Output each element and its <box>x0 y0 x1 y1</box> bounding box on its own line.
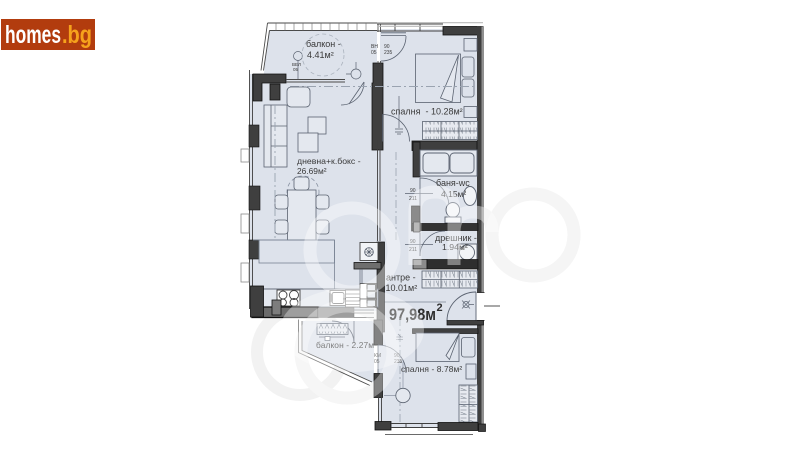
svg-text:спалня - 8.78м²: спалня - 8.78м² <box>401 364 462 374</box>
svg-text:балкон -: балкон - <box>306 39 341 49</box>
svg-text:homes: homes <box>5 21 61 49</box>
svg-text:235: 235 <box>384 50 393 56</box>
svg-text:.bg: .bg <box>62 21 92 49</box>
svg-text:дневна+к.бокс -: дневна+к.бокс - <box>297 156 361 166</box>
svg-text:05: 05 <box>293 67 299 72</box>
svg-text:10.01м²: 10.01м² <box>386 283 418 293</box>
svg-text:4.41м²: 4.41м² <box>307 50 334 60</box>
svg-text:26.69м²: 26.69м² <box>297 166 327 176</box>
svg-text:05: 05 <box>371 50 377 56</box>
svg-text:спалня - 10.28м²: спалня - 10.28м² <box>391 107 463 117</box>
svg-text:2: 2 <box>437 302 443 314</box>
